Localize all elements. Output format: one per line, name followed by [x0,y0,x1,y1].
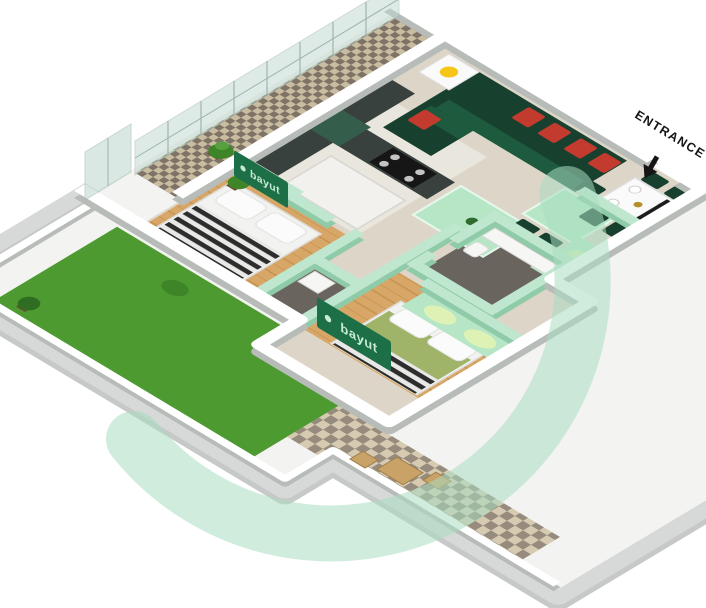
floorplan-canvas: bayut bayut ENTRANCE [0,0,706,608]
floorplan-svg: bayut bayut ENTRANCE [0,0,706,608]
